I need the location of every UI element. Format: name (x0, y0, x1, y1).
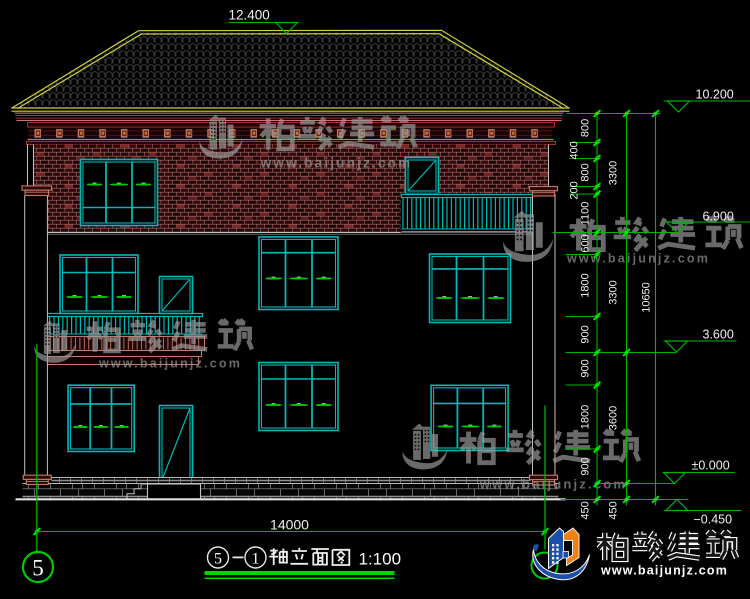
svg-text:www.baijunjz.com: www.baijunjz.com (98, 357, 242, 371)
svg-text:±0.000: ±0.000 (692, 459, 730, 473)
svg-text:800: 800 (580, 163, 592, 181)
svg-text:1800: 1800 (580, 405, 592, 429)
svg-text:www.baijunjz.com: www.baijunjz.com (600, 564, 728, 578)
svg-text:3.600: 3.600 (703, 328, 734, 342)
svg-text:900: 900 (580, 325, 592, 343)
svg-text:450: 450 (580, 501, 592, 519)
svg-text:900: 900 (580, 457, 592, 475)
svg-text:1100: 1100 (580, 202, 592, 226)
svg-text:www.baijunjz.com: www.baijunjz.com (260, 156, 413, 171)
svg-text:3600: 3600 (608, 406, 620, 430)
svg-text:450: 450 (608, 501, 620, 519)
svg-text:1800: 1800 (580, 273, 592, 297)
svg-text:5: 5 (214, 551, 222, 568)
svg-text:1: 1 (252, 551, 260, 568)
svg-text:3300: 3300 (608, 280, 620, 304)
svg-text:800: 800 (580, 119, 592, 137)
svg-text:5: 5 (32, 556, 44, 581)
svg-text:3300: 3300 (608, 161, 620, 185)
svg-text:10.200: 10.200 (696, 88, 734, 102)
svg-text:6.900: 6.900 (703, 210, 734, 224)
svg-text:1:100: 1:100 (359, 550, 402, 569)
svg-text:600: 600 (580, 234, 592, 252)
svg-text:12.400: 12.400 (229, 8, 270, 23)
svg-text:400: 400 (569, 141, 581, 159)
svg-text:14000: 14000 (270, 517, 309, 533)
svg-text:200: 200 (569, 181, 581, 199)
svg-text:−0.450: −0.450 (694, 513, 733, 527)
svg-text:900: 900 (580, 359, 592, 377)
svg-text:10650: 10650 (641, 282, 653, 313)
